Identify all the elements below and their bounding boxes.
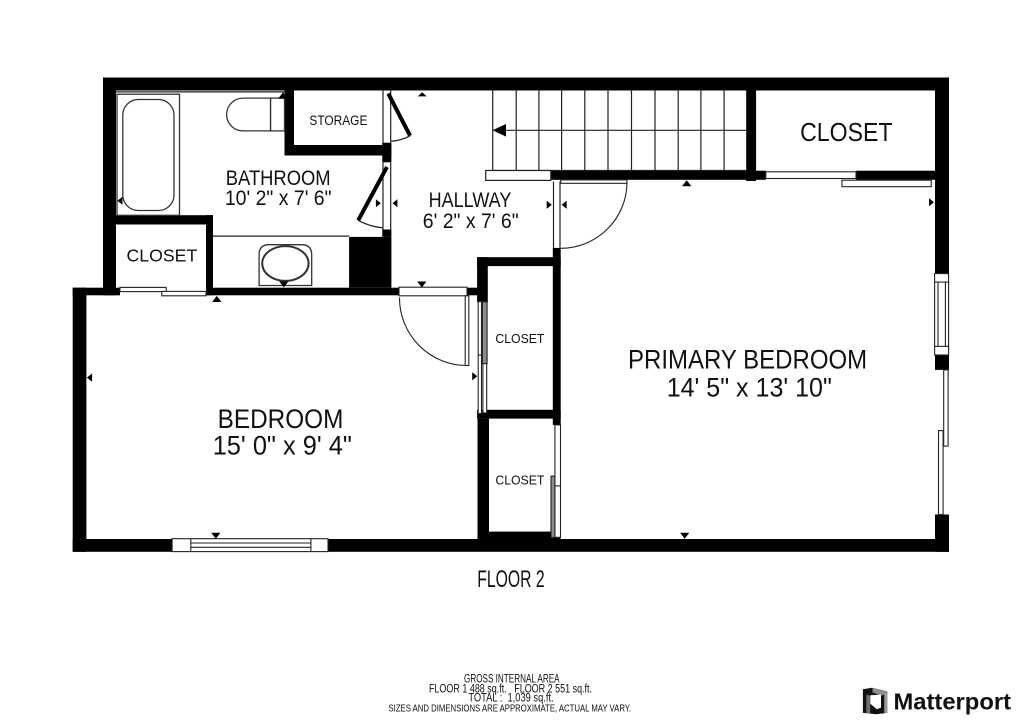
svg-text:CLOSET: CLOSET — [127, 246, 198, 266]
svg-text:HALLWAY: HALLWAY — [429, 189, 512, 212]
svg-text:CLOSET: CLOSET — [495, 473, 544, 487]
svg-text:CLOSET: CLOSET — [495, 332, 544, 346]
svg-text:CLOSET: CLOSET — [800, 117, 892, 147]
svg-text:TOTAL : 1,039 sq.ft.: TOTAL : 1,039 sq.ft. — [468, 692, 553, 704]
svg-text:14' 5" x 13' 10": 14' 5" x 13' 10" — [667, 372, 832, 402]
svg-text:6' 2" x 7' 6": 6' 2" x 7' 6" — [423, 210, 519, 233]
svg-text:STORAGE: STORAGE — [309, 113, 367, 128]
svg-text:15' 0" x 9' 4": 15' 0" x 9' 4" — [213, 430, 352, 460]
svg-text:PRIMARY BEDROOM: PRIMARY BEDROOM — [628, 344, 867, 374]
svg-text:10' 2" x 7' 6": 10' 2" x 7' 6" — [225, 187, 332, 210]
svg-text:FLOOR 2: FLOOR 2 — [477, 566, 544, 593]
svg-text:SIZES AND DIMENSIONS ARE APPRO: SIZES AND DIMENSIONS ARE APPROXIMATE, AC… — [389, 704, 632, 715]
svg-text:Matterport: Matterport — [894, 689, 1012, 715]
